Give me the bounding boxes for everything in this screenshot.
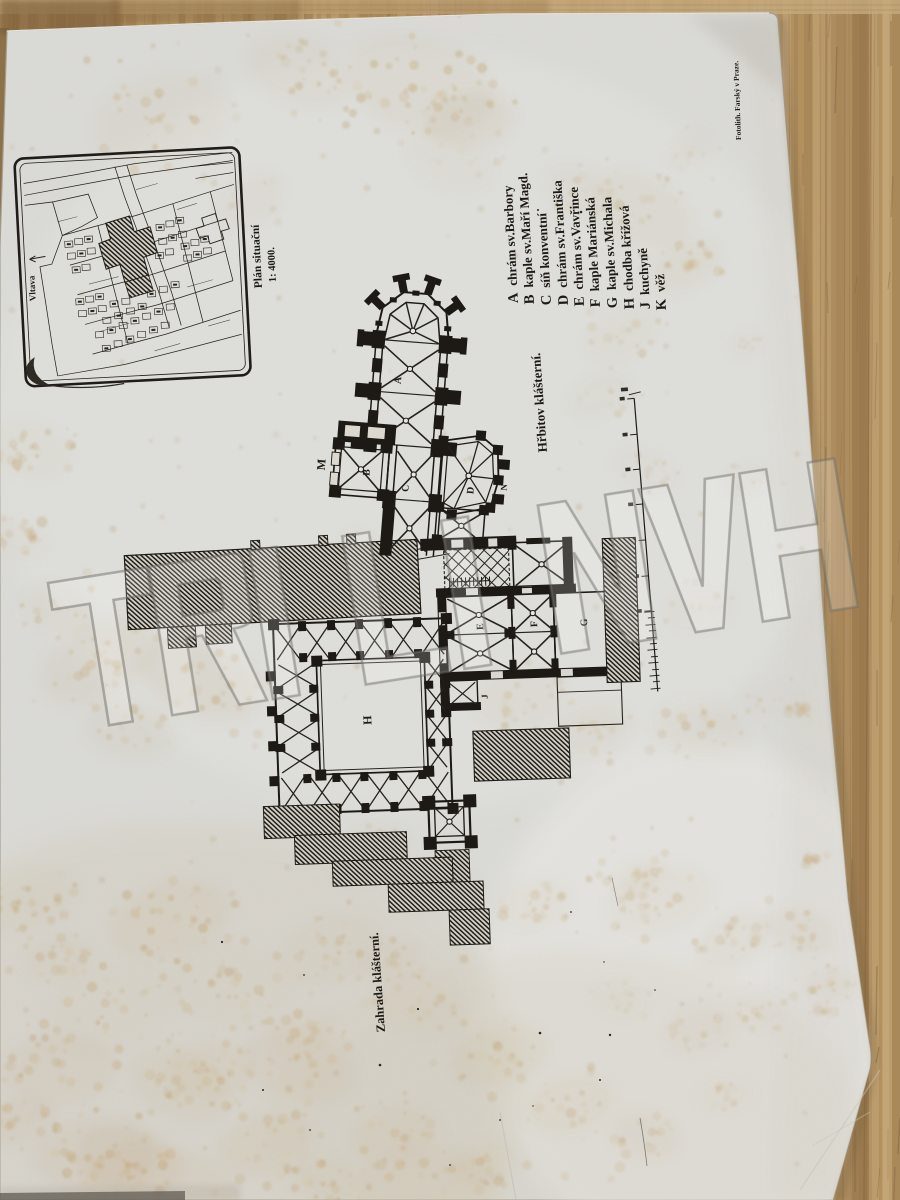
svg-text:D: D [465,486,477,494]
svg-text:H: H [360,715,374,725]
svg-text:J: J [480,694,490,699]
svg-text:F: F [529,621,540,627]
svg-text:C: C [400,484,412,492]
svg-text:M: M [314,458,329,470]
svg-text:N: N [499,483,510,491]
svg-text:1: 4000.: 1: 4000. [266,247,279,283]
svg-text:B: B [361,468,373,476]
svg-text:Vltava: Vltava [26,275,37,301]
svg-text:Kvěž: Kvěž [652,273,670,310]
